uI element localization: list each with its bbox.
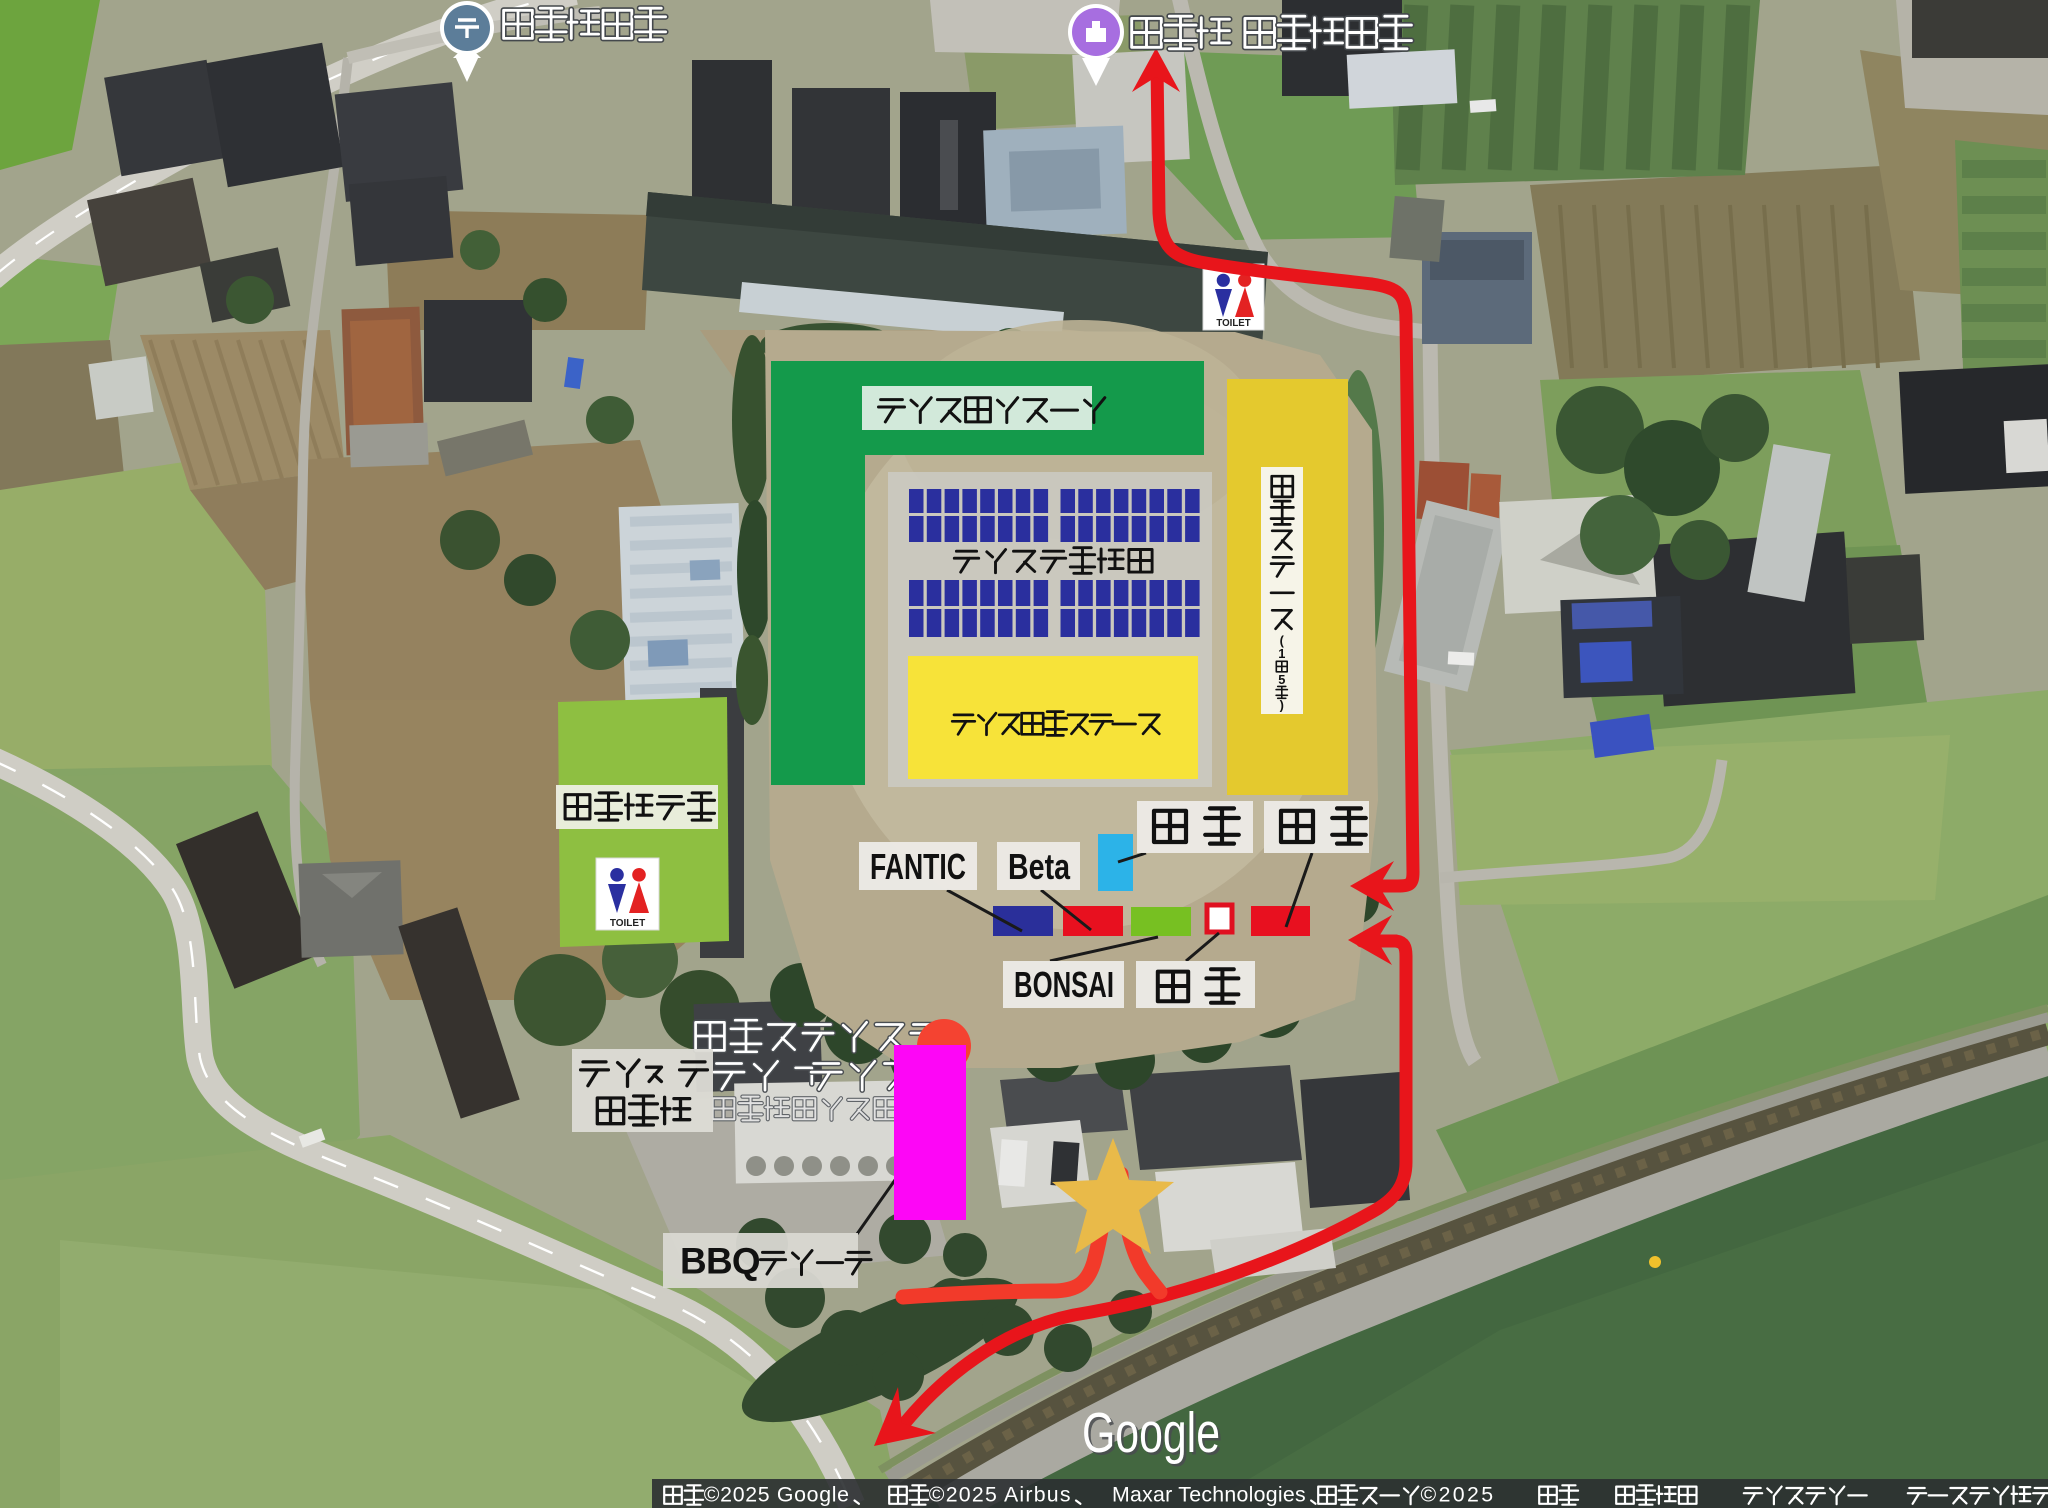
svg-text:BBQ: BBQ: [680, 1240, 761, 1281]
svg-text:Beta: Beta: [1008, 846, 1071, 887]
svg-text:Google: Google: [1082, 1401, 1220, 1465]
svg-text:1: 1: [1278, 646, 1285, 661]
svg-text:TOILET: TOILET: [1216, 318, 1250, 329]
svg-text:TOILET: TOILET: [610, 918, 645, 929]
svg-text:Maxar Technologies: Maxar Technologies: [1112, 1483, 1306, 1507]
svg-text:5: 5: [1278, 672, 1285, 687]
svg-text:): ): [1280, 698, 1284, 713]
svg-text:©2025: ©2025: [1421, 1483, 1494, 1507]
svg-text:©2025 Airbus: ©2025 Airbus: [929, 1483, 1071, 1507]
svg-text:©2025 Google: ©2025 Google: [704, 1483, 849, 1507]
svg-text:BONSAI: BONSAI: [1014, 964, 1114, 1005]
svg-text:FANTIC: FANTIC: [870, 846, 966, 887]
